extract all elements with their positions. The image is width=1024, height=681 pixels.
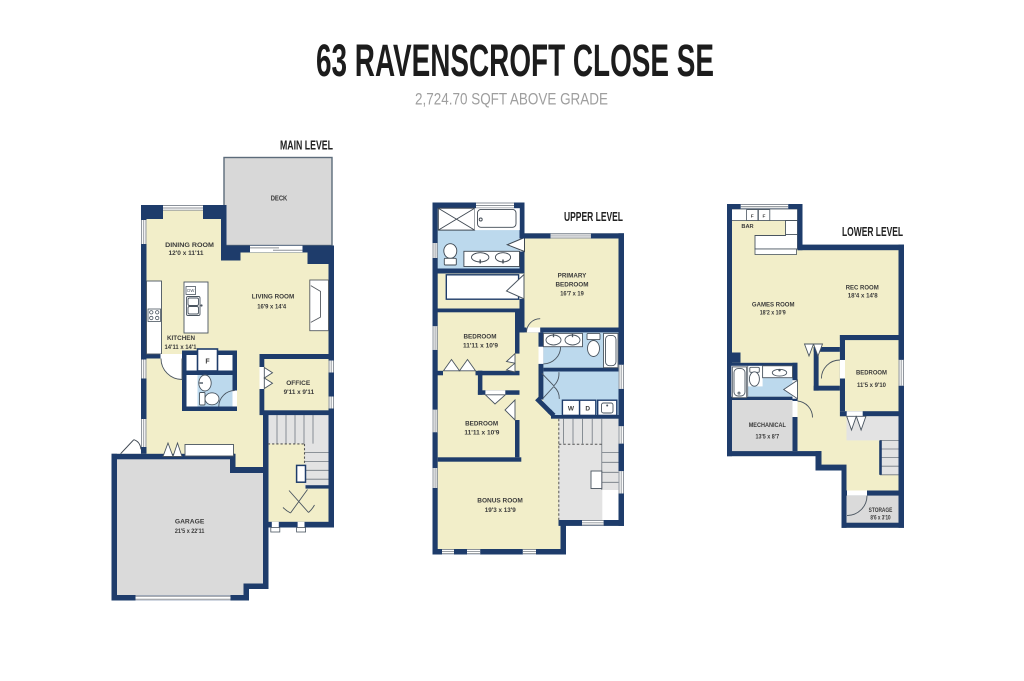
svg-text:W: W (568, 406, 575, 413)
svg-text:KITCHEN: KITCHEN (167, 335, 195, 342)
svg-text:BEDROOM: BEDROOM (856, 370, 887, 377)
svg-text:LIVING ROOM: LIVING ROOM (252, 294, 295, 301)
svg-text:STORAGE: STORAGE (869, 507, 893, 514)
svg-text:16'9 x 14'4: 16'9 x 14'4 (257, 304, 287, 311)
svg-text:MECHANICAL: MECHANICAL (749, 422, 786, 429)
svg-text:BEDROOM: BEDROOM (464, 334, 497, 341)
svg-text:REC ROOM: REC ROOM (846, 285, 879, 292)
svg-text:8'6 x 3'10: 8'6 x 3'10 (870, 515, 891, 522)
svg-text:13'5 x 8'7: 13'5 x 8'7 (756, 433, 780, 440)
svg-text:16'7 x 19: 16'7 x 19 (560, 290, 584, 297)
svg-text:PRIMARY: PRIMARY (558, 273, 587, 280)
svg-text:11'5 x 9'10: 11'5 x 9'10 (857, 382, 887, 389)
svg-text:BONUS ROOM: BONUS ROOM (477, 498, 523, 505)
svg-text:9'11 x 9'11: 9'11 x 9'11 (284, 389, 315, 396)
svg-text:14'11 x 14'1: 14'11 x 14'1 (165, 344, 198, 351)
svg-text:BAR: BAR (741, 224, 754, 230)
svg-text:18'4 x 14'8: 18'4 x 14'8 (848, 292, 879, 299)
svg-text:21'5 x 22'11: 21'5 x 22'11 (175, 528, 205, 535)
svg-text:19'3 x 13'9: 19'3 x 13'9 (485, 507, 517, 514)
svg-text:D: D (585, 406, 590, 413)
svg-text:12'0 x 11'11: 12'0 x 11'11 (169, 250, 205, 257)
svg-text:BEDROOM: BEDROOM (465, 421, 498, 428)
svg-text:LOWER LEVEL: LOWER LEVEL (842, 224, 903, 239)
svg-text:2,724.70 SQFT ABOVE GRADE: 2,724.70 SQFT ABOVE GRADE (415, 90, 608, 109)
svg-text:MAIN LEVEL: MAIN LEVEL (280, 138, 333, 153)
svg-text:UPPER LEVEL: UPPER LEVEL (564, 209, 623, 224)
svg-text:F: F (751, 214, 754, 220)
svg-text:OFFICE: OFFICE (286, 380, 311, 387)
svg-text:DW: DW (187, 288, 194, 293)
svg-text:GARAGE: GARAGE (175, 519, 205, 526)
svg-text:GAMES ROOM: GAMES ROOM (752, 302, 795, 309)
svg-text:F: F (205, 359, 210, 366)
svg-text:63 RAVENSCROFT CLOSE SE: 63 RAVENSCROFT CLOSE SE (316, 35, 714, 86)
svg-text:11'11 x 10'9: 11'11 x 10'9 (463, 342, 499, 349)
svg-text:DINING ROOM: DINING ROOM (165, 242, 214, 249)
svg-text:F: F (763, 214, 766, 220)
svg-text:11'11 x 10'9: 11'11 x 10'9 (464, 429, 500, 436)
svg-text:DECK: DECK (271, 194, 288, 203)
svg-text:18'2 x 10'9: 18'2 x 10'9 (760, 309, 786, 316)
svg-text:BEDROOM: BEDROOM (556, 282, 589, 289)
